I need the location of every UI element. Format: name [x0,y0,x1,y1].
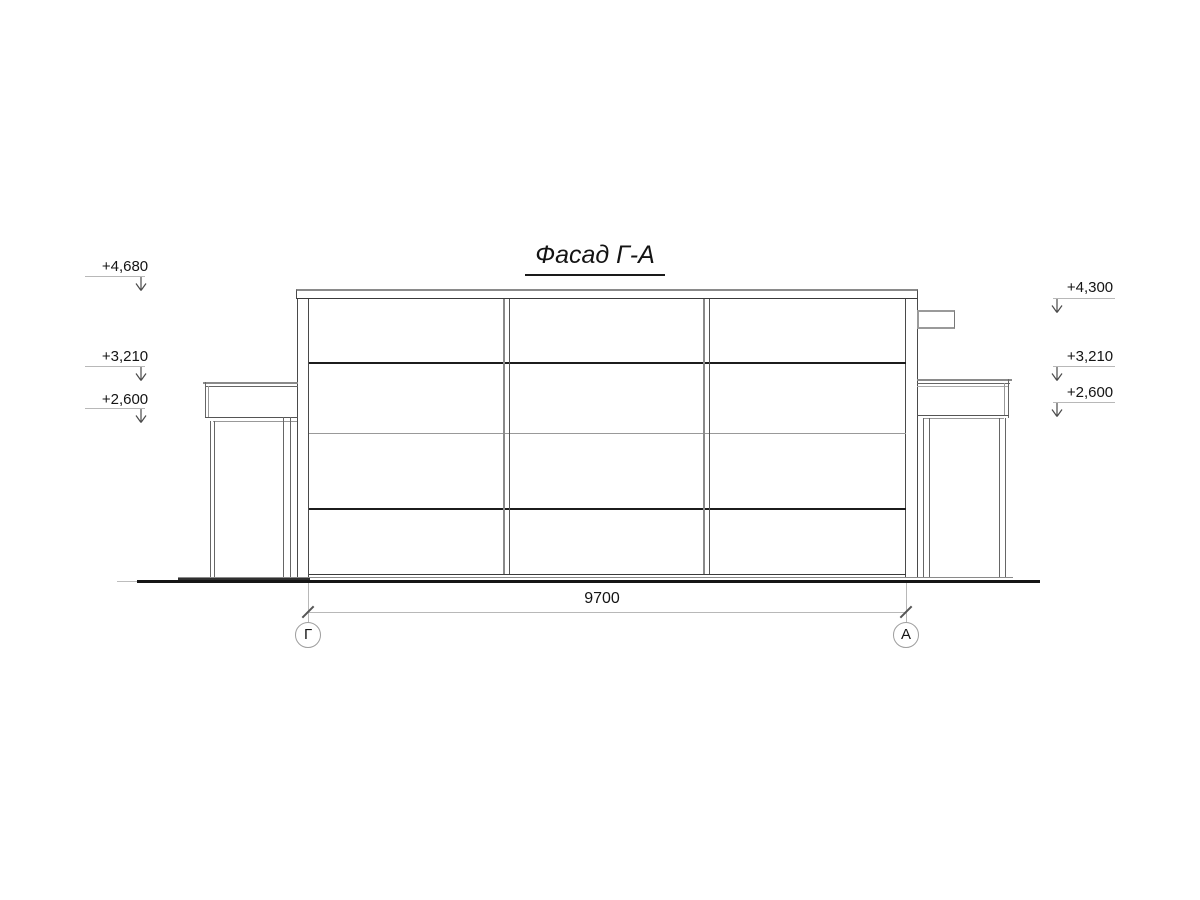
elevation-arrow-icon [1050,403,1064,418]
right-porch-roof-inner-line [917,383,1010,384]
right-porch-edge-inner [1004,383,1005,416]
right-porch-column-outer [999,418,1006,578]
dimension-line [308,612,906,613]
elevation-arrow-icon [1050,299,1064,314]
left-porch-edge-inner [208,386,209,418]
left-porch-column-inner [283,417,291,578]
axis-bubble-left: Г [295,622,321,648]
right-porch-column-inner [923,418,930,578]
axis-leader-right [906,583,907,622]
dimension-value: 9700 [557,590,647,608]
mullion-left [503,299,505,574]
elevation-arrow-icon [134,409,148,424]
facade-band-line-middle [309,433,906,434]
elevation-arrow-icon [134,367,148,382]
parapet-band [296,289,918,299]
right-porch-fascia-bottom [917,415,1009,416]
mullion-right-inner [709,299,710,574]
right-porch-beam-line [923,418,1004,419]
elevation-arrow-icon [134,277,148,292]
facade-elevation-drawing: Фасад Г-А +4,680 +3,210 +2,600 +4,300 +3… [0,0,1200,900]
ground-line [137,580,1040,583]
left-porch-column-outer [210,421,215,578]
facade-band-line-lower [309,508,906,510]
right-wall [905,299,918,578]
drawing-title-text: Фасад Г-А [525,241,665,276]
roof-protrusion-box [917,310,955,329]
mullion-left-inner [509,299,510,574]
left-porch-roof-inner-line [205,386,298,387]
elevation-arrow-icon [1050,367,1064,382]
elevation-label-left-3210: +3,210 [90,348,160,365]
elevation-label-right-4300: +4,300 [1060,279,1120,296]
mullion-right [703,299,705,574]
left-wall [297,299,309,578]
elevation-label-left-4680: +4,680 [90,258,160,275]
elevation-label-right-2600: +2,600 [1060,384,1120,401]
right-porch-edge [1008,379,1009,418]
right-porch-roof-third-line [917,386,1009,387]
elevation-label-left-2600: +2,600 [90,391,160,408]
left-porch-roof-line [203,382,298,384]
ground-line-extension [117,581,137,582]
facade-band-line-upper [309,362,906,364]
axis-leader-left [308,583,309,622]
drawing-title: Фасад Г-А [495,241,695,276]
left-porch-edge [205,382,206,418]
facade-bottom-line [309,574,906,575]
elevation-label-right-3210: +3,210 [1060,348,1120,365]
axis-bubble-right: А [893,622,919,648]
right-porch-roof-line [917,379,1012,381]
